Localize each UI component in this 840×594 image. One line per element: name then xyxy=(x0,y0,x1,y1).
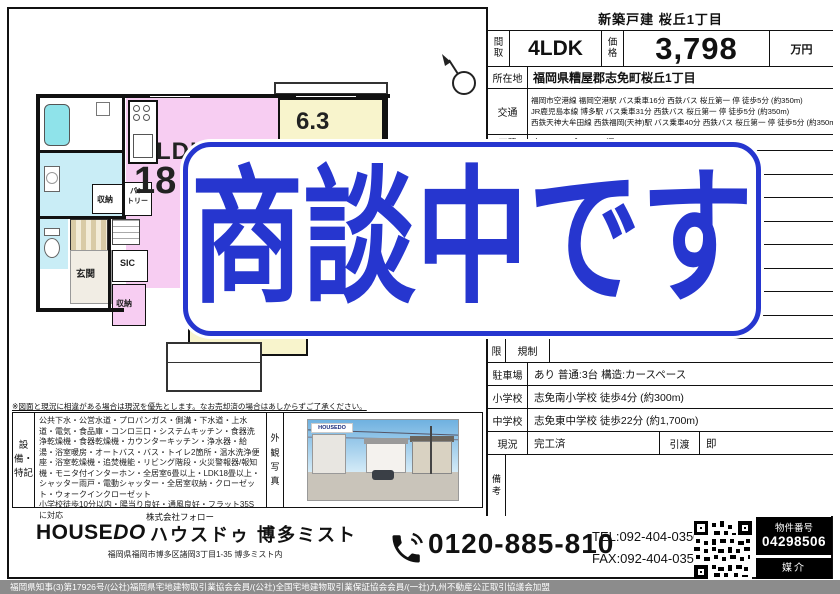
window xyxy=(296,95,356,98)
flyer-page: LDK 18 6.3 6 収納 パン トリー 玄関 SIC 収納 新築戸建 桜丘… xyxy=(0,0,840,594)
handover-label: 引渡 xyxy=(660,432,700,454)
equipment-features: 公共下水・公営水道・プロパンガス・側溝・下水道・上水道・電気・食品庫・コンロ三口… xyxy=(39,416,262,500)
exterior-photo-label: 外観写真 xyxy=(266,413,284,507)
exterior-photo-area: HOUSEDO xyxy=(284,413,482,507)
address-row: 所在地 福岡県糟屋郡志免町桜丘1丁目 xyxy=(488,67,833,89)
wall xyxy=(36,94,40,312)
table-header-row: 新築戸建 桜丘1丁目 xyxy=(488,7,833,31)
address-label: 所在地 xyxy=(488,67,528,88)
price-label: 価格 xyxy=(602,31,624,66)
status-value: 完工済 xyxy=(528,432,660,454)
wall xyxy=(38,150,124,153)
stair-steps xyxy=(112,219,140,245)
negotiation-banner: 商談中です xyxy=(183,142,761,336)
toilet-bowl-icon xyxy=(44,238,60,258)
property-number-label: 物件番号 xyxy=(756,517,832,534)
compass-icon xyxy=(438,52,482,98)
stove-burner-icon xyxy=(133,105,140,112)
status-label: 現況 xyxy=(488,432,528,454)
kitchen-sink-icon xyxy=(133,134,153,158)
junior-value: 志免東中学校 徒歩22分 (約1,700m) xyxy=(528,409,833,431)
access-line: 西鉄天神大牟田線 西鉄福岡(天神)駅 バス乗車40分 西鉄バス 桜丘第一 停 徒… xyxy=(531,117,833,128)
shop-address: 福岡県福岡市博多区諸岡3丁目1-35 博多ミスト内 xyxy=(55,549,335,560)
equipment-text: 公共下水・公営水道・プロパンガス・側溝・下水道・上水道・電気・食品庫・コンロ三口… xyxy=(35,413,266,507)
remarks-value xyxy=(506,455,833,516)
photo-pole xyxy=(430,426,432,474)
access-row: 交通 福岡市空港線 福岡空港駅 バス乗車16分 西鉄バス 桜丘第一 停 徒歩5分… xyxy=(488,89,833,135)
restriction-row: 限 規制 xyxy=(488,339,833,363)
window xyxy=(150,95,190,98)
handover-value: 即 xyxy=(700,432,833,454)
photo-car xyxy=(372,470,394,480)
washer-icon xyxy=(96,102,110,116)
access-lines: 福岡市空港線 福岡空港駅 バス乗車16分 西鉄バス 桜丘第一 停 徒歩5分 (約… xyxy=(528,89,833,134)
stove-burner-icon xyxy=(133,114,140,121)
porch-step xyxy=(166,362,262,363)
access-line: JR鹿児島本線 博多駅 バス乗車31分 西鉄バス 桜丘第一 停 徒歩5分 (約3… xyxy=(531,106,789,117)
floor-label: 間取 xyxy=(488,31,510,66)
status-row: 現況 完工済 引渡 即 xyxy=(488,432,833,455)
shop-name: ハウスドゥ 博多ミスト xyxy=(150,521,357,547)
tel-number: TEL:092-404-0350 xyxy=(592,529,700,544)
logo-house: HOUSE xyxy=(36,521,113,544)
photo-watermark: HOUSEDO xyxy=(311,423,353,433)
restriction-value xyxy=(550,339,833,362)
elementary-school-row: 小学校 志免南小学校 徒歩4分 (約300m) xyxy=(488,386,833,409)
access-label: 交通 xyxy=(488,89,528,134)
floor-price-row: 間取 4LDK 価格 3,798 万円 xyxy=(488,31,833,67)
parking-value: あり 普通:3台 構造:カースペース xyxy=(528,363,833,385)
sink-bowl-icon xyxy=(46,172,58,184)
stove-burner-icon xyxy=(143,114,150,121)
remarks-label: 備考 xyxy=(488,455,506,516)
housedo-logo: HOUSEDO xyxy=(36,521,146,545)
wall xyxy=(38,216,126,219)
pantry-label-line2: トリー xyxy=(127,196,148,206)
bathtub-icon xyxy=(44,104,70,146)
negotiation-banner-text: 商談中です xyxy=(191,165,753,313)
phone-icon xyxy=(388,531,424,567)
sic-label: SIC xyxy=(120,258,135,268)
photo-house-right xyxy=(412,441,452,474)
stove-burner-icon xyxy=(143,105,150,112)
license-strip: 福岡県知事(3)第17926号/(公社)福岡県宅地建物取引業協会会員/(公社)全… xyxy=(0,580,840,594)
remarks-row: 備考 xyxy=(488,455,833,516)
property-number-value: 04298506 xyxy=(756,534,832,549)
junior-school-row: 中学校 志免東中学校 徒歩22分 (約1,700m) xyxy=(488,409,833,432)
property-number-top: 物件番号 04298506 xyxy=(756,517,832,555)
junior-label: 中学校 xyxy=(488,409,528,431)
closet1-label: 収納 xyxy=(97,194,113,205)
room-upper-label: 6.3 xyxy=(296,108,329,136)
parking-label: 駐車場 xyxy=(488,363,528,385)
property-number-block: 物件番号 04298506 媒介 xyxy=(756,517,832,579)
disclaimer-note: ※図面と現況に相違がある場合は現況を優先とします。なお売却済の場合はあしからずご… xyxy=(12,401,483,412)
closet2-label: 収納 xyxy=(116,298,132,309)
wall xyxy=(122,96,125,218)
photo-house-left xyxy=(312,434,346,474)
wall xyxy=(108,216,111,312)
price-unit: 万円 xyxy=(770,31,833,66)
pantry-label-line1: パン xyxy=(130,186,144,196)
toilet-tank-icon xyxy=(44,228,60,236)
equipment-label: 設備・特記 xyxy=(13,413,35,507)
floor-value: 4LDK xyxy=(510,31,602,66)
elementary-label: 小学校 xyxy=(488,386,528,408)
wall xyxy=(384,94,388,144)
access-line: 福岡市空港線 福岡空港駅 バス乗車16分 西鉄バス 桜丘第一 停 徒歩5分 (約… xyxy=(531,95,803,106)
qr-code xyxy=(694,521,752,579)
photo-house-center xyxy=(366,443,406,473)
entrance-label: 玄関 xyxy=(76,266,95,280)
parking-row: 駐車場 あり 普通:3台 構造:カースペース xyxy=(488,363,833,386)
restriction-outer-label: 限 xyxy=(488,339,506,362)
property-title: 新築戸建 桜丘1丁目 xyxy=(488,7,833,30)
freedial-number: 0120-885-810 xyxy=(428,528,614,560)
fax-number: FAX:092-404-0351 xyxy=(592,551,701,566)
porch xyxy=(166,342,262,392)
equipment-notes-box: 設備・特記 公共下水・公営水道・プロパンガス・側溝・下水道・上水道・電気・食品庫… xyxy=(12,412,483,508)
elementary-value: 志免南小学校 徒歩4分 (約300m) xyxy=(528,386,833,408)
exterior-photo: HOUSEDO xyxy=(307,419,459,501)
logo-do: DO xyxy=(113,521,146,544)
transaction-type-badge: 媒介 xyxy=(756,558,832,579)
address-value: 福岡県糟屋郡志免町桜丘1丁目 xyxy=(528,67,833,88)
restriction-label: 規制 xyxy=(506,339,550,362)
price-value: 3,798 xyxy=(624,31,770,66)
